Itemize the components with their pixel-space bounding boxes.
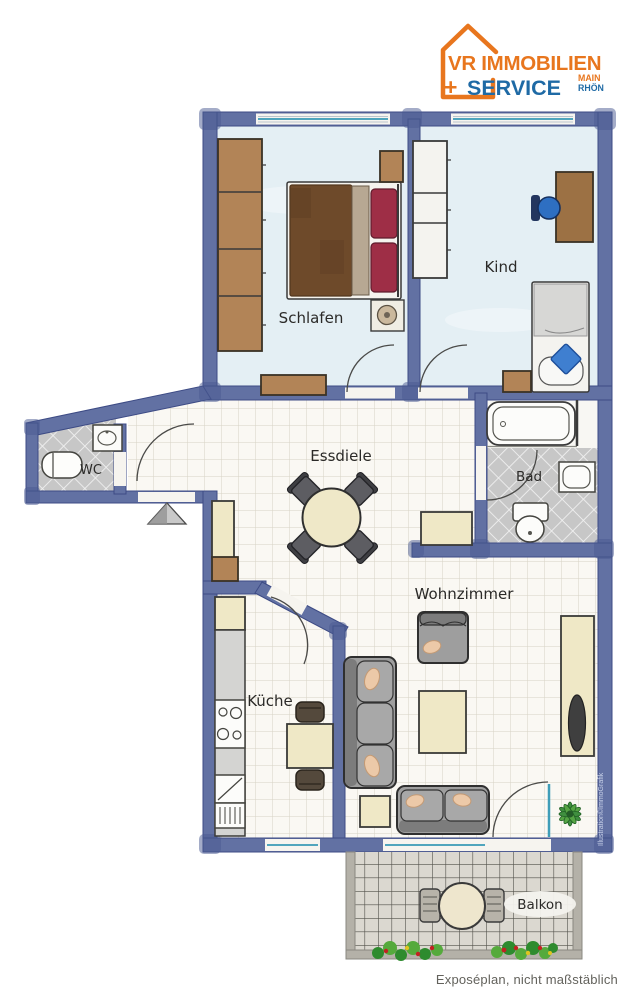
bathtub [487, 402, 575, 445]
kid-bed [532, 282, 589, 392]
balcony-table [439, 883, 485, 929]
logo-plus: + [444, 74, 457, 100]
hall-sideboard [212, 501, 234, 558]
logo: VR IMMOBILIEN + SERVICE MAIN RHÖN [443, 26, 604, 100]
double-bed [287, 182, 401, 299]
hall-cabinet [212, 557, 238, 581]
pillow-red [371, 189, 397, 238]
side-table [360, 796, 390, 827]
stove [215, 700, 245, 748]
sink [93, 425, 122, 451]
logo-region-line1: MAIN [578, 73, 600, 83]
sink [559, 462, 595, 492]
label-wohnzimmer: Wohnzimmer [415, 585, 515, 603]
side-table [380, 151, 403, 182]
disclaimer-text: Exposéplan, nicht maßstäblich [436, 972, 618, 987]
pillow-red [371, 243, 397, 292]
nightstand-lamp [371, 300, 404, 331]
armchair [418, 612, 468, 663]
kitchen-sink-unit [215, 775, 245, 828]
label-balkon: Balkon [517, 897, 562, 913]
label-essdiele: Essdiele [310, 447, 371, 465]
kitchen-cabinet [215, 597, 245, 630]
balcony-chair [484, 889, 504, 922]
dining-table [303, 489, 361, 547]
coffee-table [419, 691, 466, 753]
floorplan-page: Schlafen Kind WC Essdiele Bad Küche Wohn… [0, 0, 628, 1000]
illustrator-watermark: Illustration©ImmoGrafik [597, 772, 605, 846]
door-gap-entrance [138, 492, 195, 502]
sofa-three-seat [344, 657, 396, 788]
door-gap-balcony [487, 839, 551, 851]
window-kueche [265, 839, 320, 851]
door-gap-bad [476, 446, 486, 500]
desk [556, 172, 593, 242]
window-schlafen [256, 114, 390, 125]
floorplan-svg: Schlafen Kind WC Essdiele Bad Küche Wohn… [0, 0, 628, 1000]
toilet [42, 452, 82, 478]
wardrobe [218, 139, 266, 351]
kitchen-chair [296, 770, 324, 790]
label-bad: Bad [516, 469, 542, 485]
tv-sideboard [561, 616, 594, 756]
wall-left-upper [203, 112, 217, 400]
label-kind: Kind [484, 258, 517, 276]
bench [421, 512, 472, 545]
desk-chair [531, 195, 560, 221]
kitchen-table [287, 724, 333, 768]
wall-right [598, 112, 612, 852]
window-wohnzimmer [383, 839, 487, 851]
door-gap-kind [418, 388, 468, 399]
label-wc: WC [80, 463, 102, 478]
door-gap-wc [114, 452, 126, 486]
logo-brand-line1: VR IMMOBILIEN [448, 52, 601, 75]
label-kueche: Küche [247, 692, 293, 710]
logo-region-line2: RHÖN [578, 83, 604, 93]
dresser [261, 375, 326, 395]
balcony-chair [420, 889, 440, 922]
shelf [413, 141, 451, 278]
label-schlafen: Schlafen [279, 309, 344, 327]
nightstand [503, 371, 531, 392]
kitchen-chair [296, 702, 324, 722]
balcony-rail-left [346, 852, 355, 959]
door-gap-schlafen [345, 388, 395, 399]
window-kind [451, 114, 575, 125]
logo-brand-line2: SERVICE [467, 76, 561, 100]
tv [569, 695, 586, 751]
sofa-two-seat [397, 786, 489, 834]
